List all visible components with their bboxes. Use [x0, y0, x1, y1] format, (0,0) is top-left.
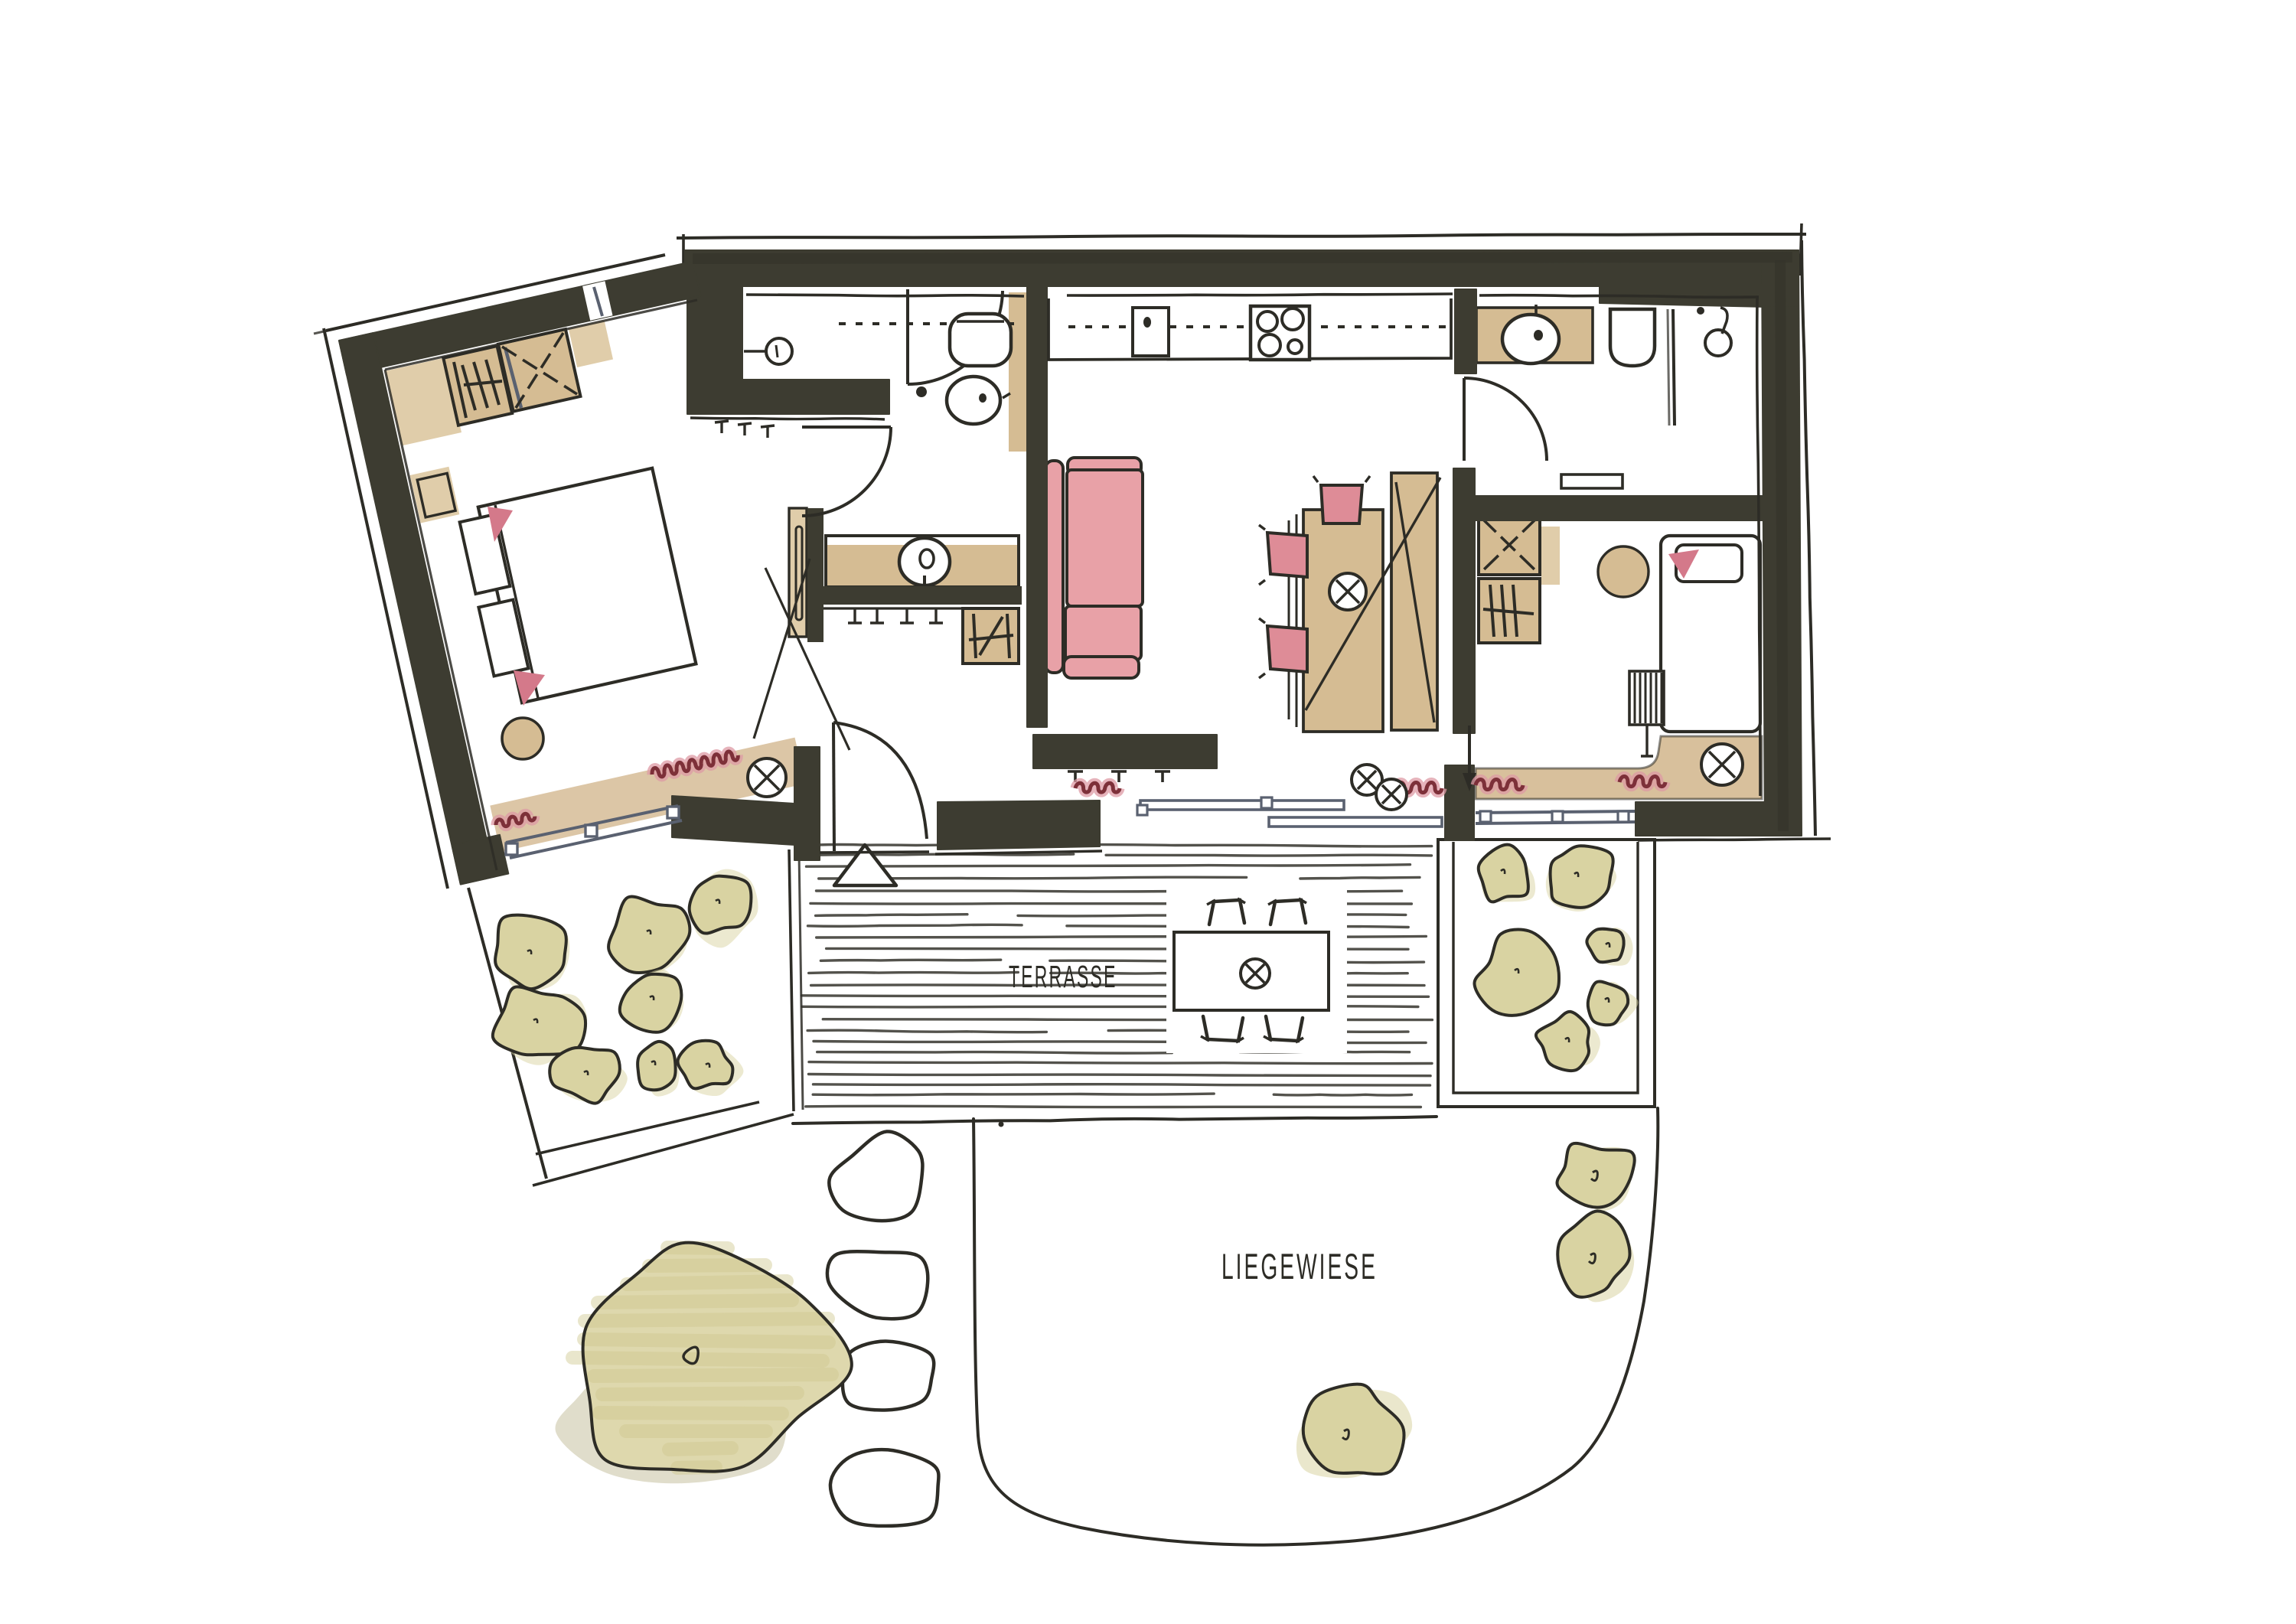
svg-text:TERRASSE: TERRASSE — [1009, 960, 1117, 995]
svg-text:LIEGEWIESE: LIEGEWIESE — [1221, 1247, 1378, 1287]
